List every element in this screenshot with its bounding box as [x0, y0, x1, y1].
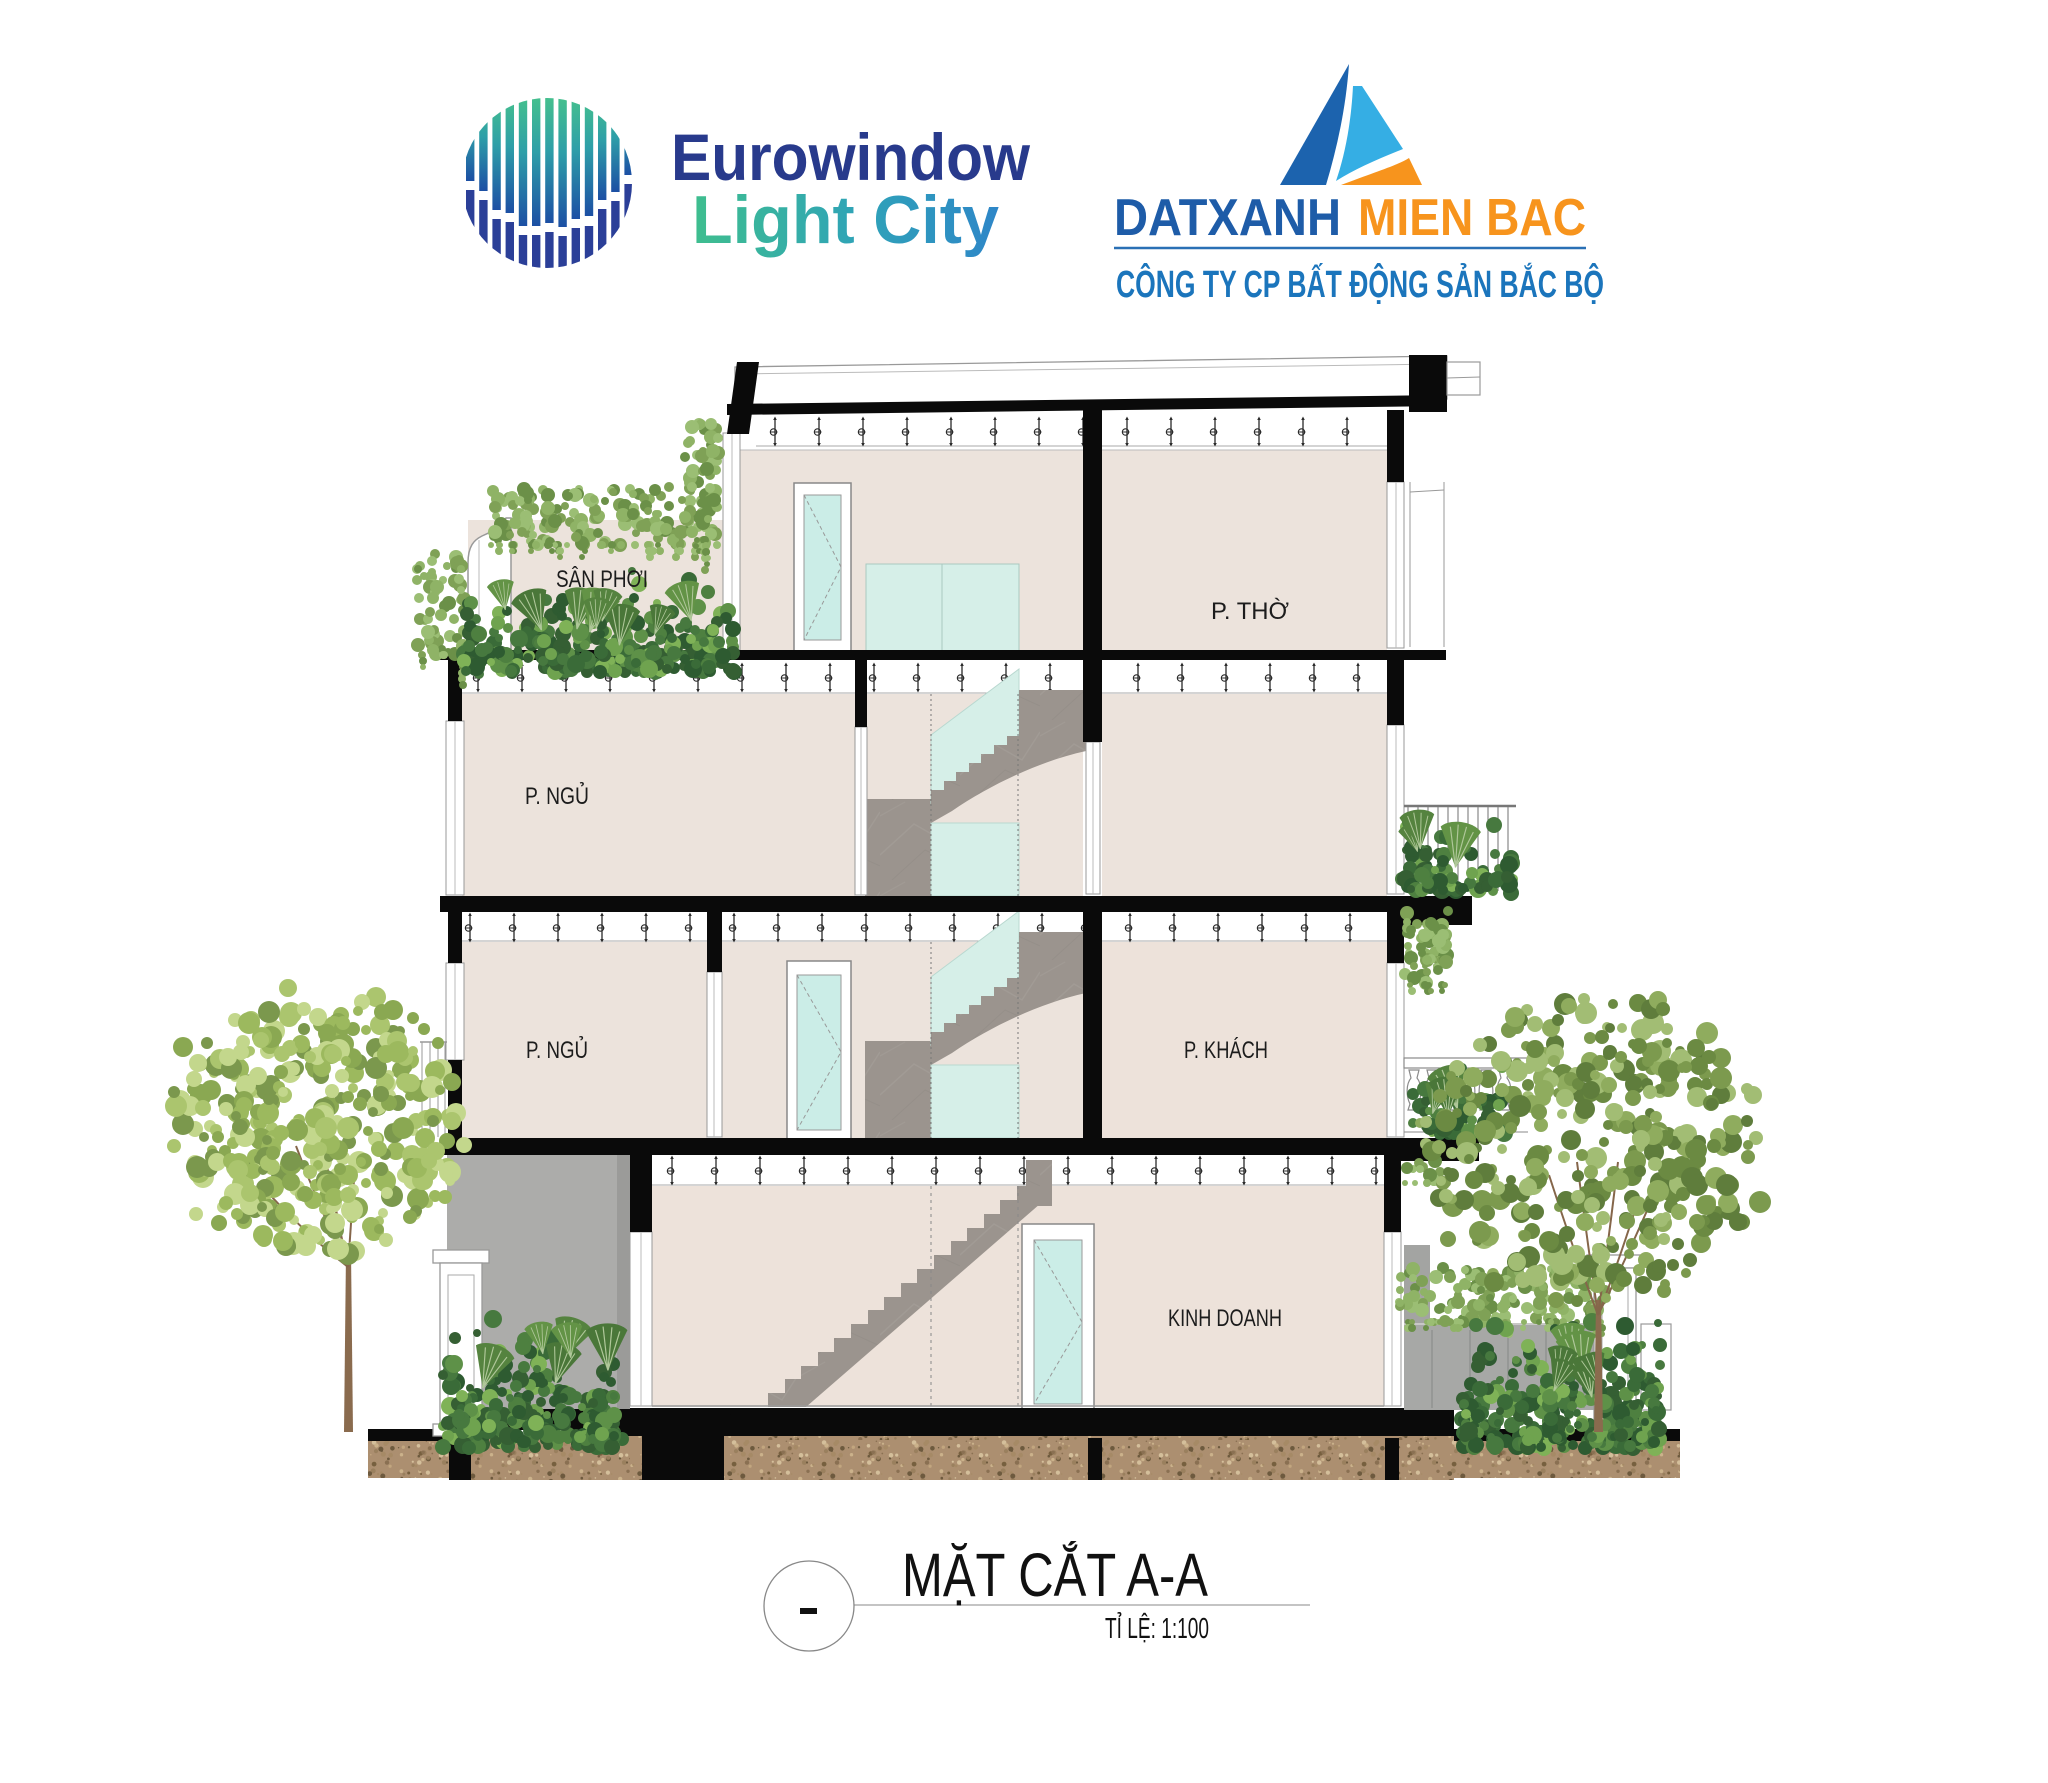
svg-text:P. NGỦ: P. NGỦ	[525, 781, 589, 810]
svg-text:P. THỜ: P. THỜ	[1211, 598, 1289, 625]
svg-text:TỈ LỆ: 1:100: TỈ LỆ: 1:100	[1105, 1611, 1209, 1645]
svg-text:MIEN BAC: MIEN BAC	[1358, 189, 1586, 247]
svg-text:P. KHÁCH: P. KHÁCH	[1184, 1037, 1268, 1064]
svg-text:SÂN PHƠI: SÂN PHƠI	[556, 566, 648, 593]
svg-text:DATXANH: DATXANH	[1114, 189, 1341, 247]
svg-text:KINH DOANH: KINH DOANH	[1168, 1305, 1282, 1332]
svg-text:CÔNG TY CP BẤT ĐỘNG SẢN BẮC BỘ: CÔNG TY CP BẤT ĐỘNG SẢN BẮC BỘ	[1116, 261, 1604, 306]
svg-text:MẶT CẮT A-A: MẶT CẮT A-A	[902, 1541, 1208, 1609]
svg-text:P. NGỦ: P. NGỦ	[526, 1035, 588, 1064]
svg-text:Light City: Light City	[692, 182, 999, 258]
